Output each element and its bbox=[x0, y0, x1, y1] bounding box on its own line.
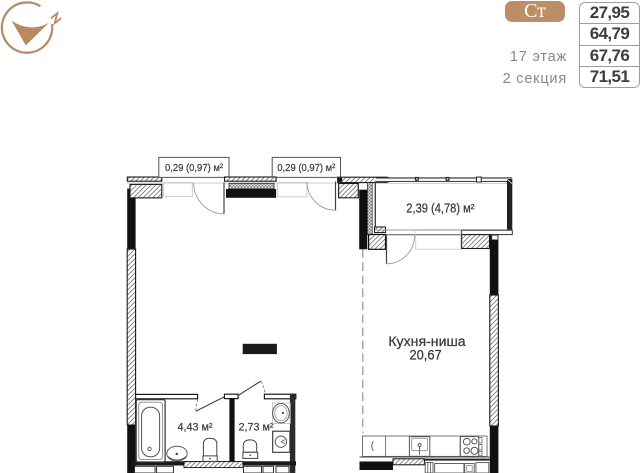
svg-text:0,29 (0,97) м²: 0,29 (0,97) м² bbox=[165, 163, 224, 174]
svg-text:0,29 (0,97) м²: 0,29 (0,97) м² bbox=[277, 163, 336, 174]
svg-text:4,43 м²: 4,43 м² bbox=[178, 421, 213, 433]
svg-text:2,73 м²: 2,73 м² bbox=[239, 421, 274, 433]
svg-text:20,67: 20,67 bbox=[409, 348, 441, 363]
svg-text:2,39 (4,78) м²: 2,39 (4,78) м² bbox=[406, 200, 475, 215]
